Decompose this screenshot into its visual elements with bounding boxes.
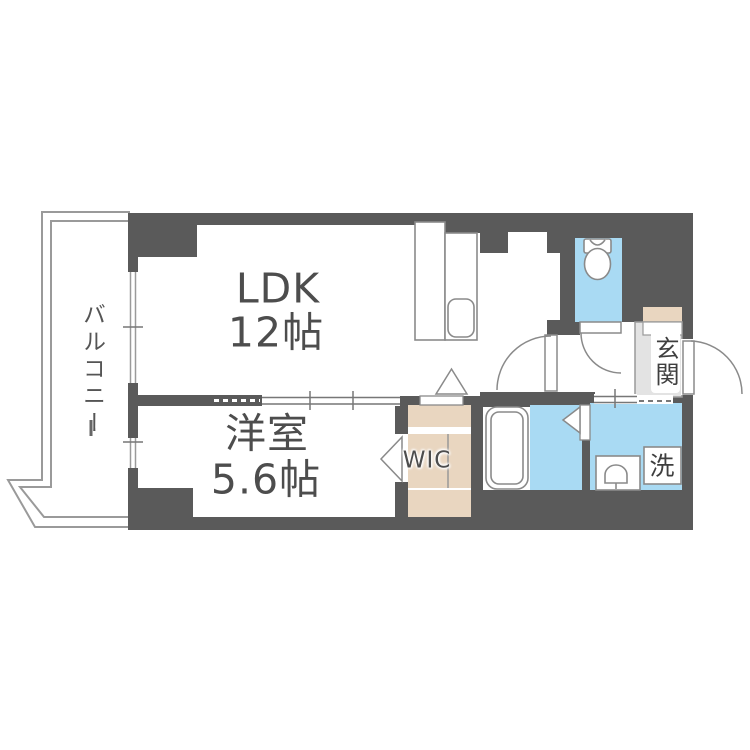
wall-left-a: [128, 225, 138, 272]
entrance-step: [643, 307, 682, 322]
bathtub-outer-icon: [486, 407, 528, 489]
kitchen-sink-icon: [448, 299, 474, 337]
hall-door-arc: [497, 336, 551, 390]
wall-bottom-wet: [483, 490, 693, 530]
balcony-label: バルコニー: [80, 303, 103, 438]
floorplan-drawing: [0, 0, 750, 750]
entrance-door-leaf: [683, 341, 694, 394]
wall-toilet-left: [560, 213, 575, 322]
wic-west-door-triangle: [381, 437, 402, 481]
ldk-room-label: LDK: [236, 269, 320, 310]
ldk-size-label: 12帖: [228, 313, 324, 354]
opening-genkan-bg: [637, 395, 673, 404]
wall-left-c: [128, 468, 138, 530]
wall-bottom-bedroom: [138, 517, 483, 530]
laundry-label: 洗: [649, 454, 674, 479]
wall-left-b: [128, 383, 138, 438]
wall-wic-west-bottom: [395, 482, 408, 530]
wall-right-low: [682, 394, 693, 530]
wall-hall-stub: [547, 320, 580, 335]
wall-wic-bath: [471, 405, 483, 530]
wash-basin-icon: [605, 465, 627, 483]
entrance-door-arc: [691, 341, 742, 394]
windows: [123, 272, 143, 468]
wic-shelf-top: [408, 405, 471, 427]
wall-right-mid: [682, 307, 693, 340]
wic-label: WIC: [403, 450, 452, 473]
wall-toilet-top: [575, 213, 622, 238]
bedroom-size-label: 5.6帖: [211, 460, 321, 501]
wic-north-door-bar: [420, 396, 463, 405]
wall-bedroom-north-left: [128, 395, 212, 406]
kitchen-counter-left-icon: [415, 222, 445, 340]
bedroom-room-label: 洋室: [225, 414, 309, 455]
wic-north-door-triangle: [436, 369, 467, 394]
balcony-outline: [8, 212, 138, 527]
wall-step-side: [622, 307, 643, 322]
wall-topright-block: [622, 213, 693, 307]
wic-shelf-bottom: [408, 490, 471, 517]
wall-kitchen-top: [445, 225, 505, 233]
wall-topleft-block: [128, 213, 197, 257]
balcony-outer-line: [8, 212, 138, 527]
toilet-door-arc: [581, 333, 621, 373]
entrance-label: 玄関: [653, 336, 677, 388]
pipe-space-recess: [508, 232, 547, 277]
wall-hall-south: [480, 392, 595, 407]
wall-wic-west-top: [395, 407, 408, 434]
toilet-bowl-icon: [585, 249, 611, 280]
floorplan: LDK 12帖 洋室 5.6帖 バルコニー WIC 玄関 洗: [0, 0, 750, 750]
toilet-door-leaf: [580, 322, 621, 333]
hall-door-leaf: [545, 335, 557, 391]
bath-door-bar: [580, 405, 590, 440]
